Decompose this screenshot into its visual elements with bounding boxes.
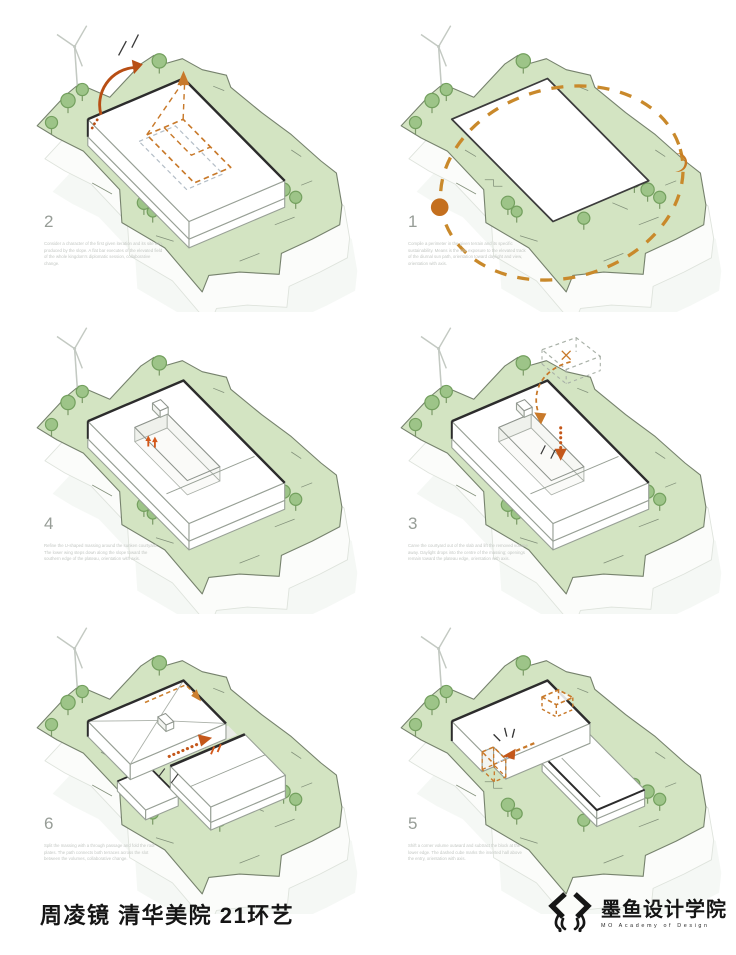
panel-step-5: 5 Shift a corner volume outward and subt…	[382, 618, 722, 914]
site-axonometric-step-6	[18, 618, 358, 914]
step-caption: Compile a perimeter in the given terrain…	[408, 241, 528, 268]
panel-step-4: 4 Refine the U-shaped massing around the…	[18, 318, 358, 614]
panel-step-2: 2 Consider a character of the first give…	[18, 16, 358, 312]
panel-step-6: 6 Split the massing with a through passa…	[18, 618, 358, 914]
step-number: 2	[44, 212, 164, 232]
studio-logo: 墨鱼设计学院 MO Academy of Design	[546, 890, 727, 938]
panel-label: 5 Shift a corner volume outward and subt…	[408, 814, 528, 863]
panel-step-1: 1 Compile a perimeter in the given terra…	[382, 16, 722, 312]
step-caption: Consider a character of the first given …	[44, 241, 164, 268]
panel-label: 2 Consider a character of the first give…	[44, 212, 164, 268]
panel-label: 4 Refine the U-shaped massing around the…	[44, 514, 164, 563]
panel-label: 1 Compile a perimeter in the given terra…	[408, 212, 528, 268]
squid-logo-icon	[546, 890, 594, 938]
site-axonometric-step-5	[382, 618, 722, 914]
step-number: 6	[44, 814, 164, 834]
step-caption: Refine the U-shaped massing around the s…	[44, 543, 164, 563]
step-caption: Split the massing with a through passage…	[44, 843, 164, 863]
panel-step-3: 3 Carve the courtyard out of the slab an…	[382, 318, 722, 614]
step-number: 5	[408, 814, 528, 834]
poster: 2 Consider a character of the first give…	[0, 0, 736, 955]
site-axonometric-step-4	[18, 318, 358, 614]
logo-text-column: 墨鱼设计学院 MO Academy of Design	[601, 899, 727, 929]
site-axonometric-step-3	[382, 318, 722, 614]
panel-label: 6 Split the massing with a through passa…	[44, 814, 164, 863]
step-number: 1	[408, 212, 528, 232]
logo-subtitle: MO Academy of Design	[601, 923, 727, 929]
author-title: 周凌镜 清华美院 21环艺	[40, 898, 294, 930]
step-caption: Carve the courtyard out of the slab and …	[408, 543, 528, 563]
panel-label: 3 Carve the courtyard out of the slab an…	[408, 514, 528, 563]
logo-name: 墨鱼设计学院	[601, 899, 727, 921]
step-number: 3	[408, 514, 528, 534]
step-number: 4	[44, 514, 164, 534]
step-caption: Shift a corner volume outward and subtra…	[408, 843, 528, 863]
footer: 周凌镜 清华美院 21环艺 墨鱼设计学院 MO Academy of Desig…	[0, 890, 736, 950]
